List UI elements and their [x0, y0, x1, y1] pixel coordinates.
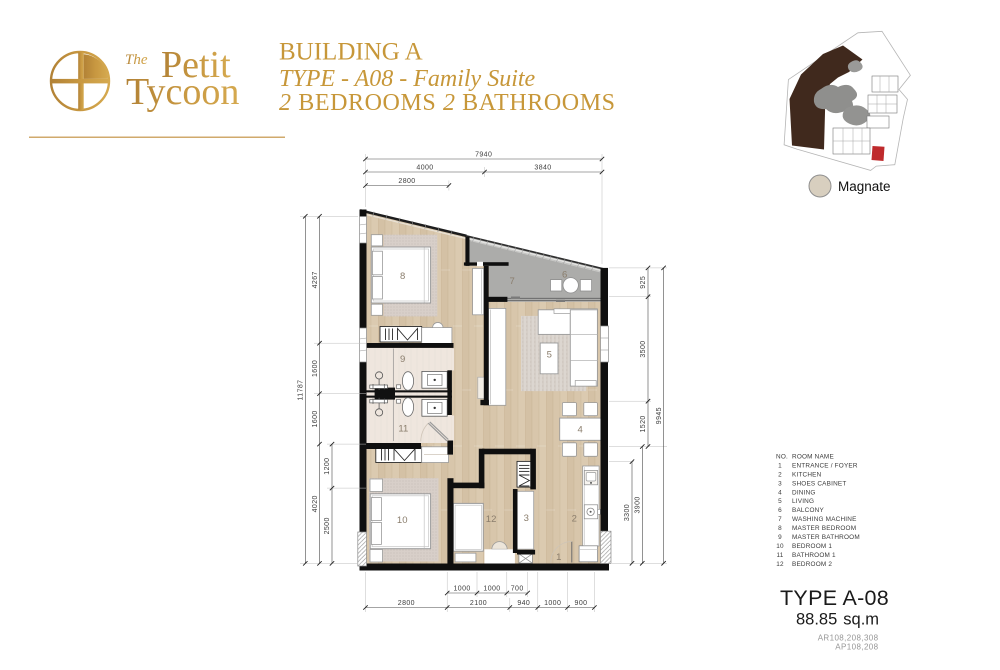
- svg-text:6: 6: [562, 270, 567, 281]
- svg-text:TYPE - A08 - Family Suite: TYPE - A08 - Family Suite: [279, 66, 536, 92]
- svg-text:700: 700: [511, 586, 524, 593]
- svg-text:3: 3: [778, 480, 782, 487]
- svg-text:The: The: [125, 52, 148, 68]
- svg-text:9: 9: [778, 534, 782, 541]
- svg-text:DINING: DINING: [792, 489, 816, 496]
- svg-text:7940: 7940: [475, 152, 492, 159]
- svg-text:Magnate: Magnate: [838, 179, 891, 194]
- svg-text:4000: 4000: [416, 165, 433, 172]
- svg-text:2: 2: [778, 471, 782, 478]
- svg-text:1520: 1520: [640, 415, 647, 432]
- svg-text:4: 4: [577, 425, 582, 436]
- svg-text:ENTRANCE / FOYER: ENTRANCE / FOYER: [792, 463, 858, 470]
- svg-text:6: 6: [778, 507, 782, 514]
- svg-text:AR108,208,308: AR108,208,308: [818, 634, 879, 643]
- svg-text:NO.: NO.: [776, 454, 788, 461]
- svg-text:9: 9: [400, 354, 405, 365]
- svg-text:925: 925: [640, 276, 647, 289]
- svg-text:Tycoon: Tycoon: [126, 71, 239, 113]
- svg-text:TYPE A-08: TYPE A-08: [780, 586, 889, 610]
- svg-text:MASTER BATHROOM: MASTER BATHROOM: [792, 534, 860, 541]
- svg-text:ROOM NAME: ROOM NAME: [792, 454, 834, 461]
- svg-text:88.85sq.m: 88.85sq.m: [796, 611, 879, 629]
- svg-text:5: 5: [547, 350, 552, 361]
- svg-text:BALCONY: BALCONY: [792, 507, 824, 514]
- svg-text:MASTER BEDROOM: MASTER BEDROOM: [792, 525, 856, 532]
- svg-text:7: 7: [778, 516, 782, 523]
- svg-text:4020: 4020: [312, 495, 319, 512]
- svg-text:3: 3: [524, 513, 529, 524]
- svg-text:KITCHEN: KITCHEN: [792, 471, 822, 478]
- svg-text:10: 10: [397, 515, 408, 526]
- svg-text:2: 2: [572, 514, 577, 525]
- svg-text:940: 940: [517, 600, 530, 607]
- svg-text:2800: 2800: [398, 178, 415, 185]
- svg-text:1000: 1000: [483, 586, 500, 593]
- svg-text:1000: 1000: [544, 600, 561, 607]
- svg-text:3300: 3300: [624, 504, 631, 521]
- svg-text:AP108,208: AP108,208: [835, 643, 878, 652]
- svg-text:11: 11: [398, 424, 408, 435]
- svg-text:WASHING MACHINE: WASHING MACHINE: [792, 516, 857, 523]
- svg-text:SHOES CABINET: SHOES CABINET: [792, 480, 846, 487]
- svg-text:3500: 3500: [640, 340, 647, 357]
- svg-text:BATHROOM 1: BATHROOM 1: [792, 552, 836, 559]
- svg-text:2100: 2100: [470, 600, 487, 607]
- svg-text:3900: 3900: [635, 496, 642, 513]
- svg-text:7: 7: [510, 276, 515, 287]
- svg-text:BUILDING A: BUILDING A: [279, 39, 423, 66]
- svg-text:10: 10: [776, 543, 784, 550]
- svg-text:9945: 9945: [656, 407, 663, 424]
- svg-text:BEDROOM 2: BEDROOM 2: [792, 561, 832, 568]
- svg-text:1600: 1600: [312, 410, 319, 427]
- svg-text:8: 8: [778, 525, 782, 532]
- svg-text:BEDROOM 1: BEDROOM 1: [792, 543, 832, 550]
- svg-text:1: 1: [778, 463, 782, 470]
- svg-text:11787: 11787: [298, 380, 305, 401]
- svg-text:1600: 1600: [312, 360, 319, 377]
- svg-text:LIVING: LIVING: [792, 498, 814, 505]
- svg-text:4267: 4267: [312, 271, 319, 288]
- svg-text:1000: 1000: [454, 586, 471, 593]
- svg-text:4: 4: [778, 489, 782, 496]
- svg-text:2800: 2800: [398, 600, 415, 607]
- svg-text:2 BEDROOMS 2 BATHROOMS: 2 BEDROOMS 2 BATHROOMS: [279, 90, 616, 116]
- svg-text:3840: 3840: [534, 165, 551, 172]
- svg-text:12: 12: [776, 561, 784, 568]
- svg-text:2500: 2500: [324, 517, 331, 534]
- svg-text:1: 1: [556, 552, 561, 563]
- svg-text:5: 5: [778, 498, 782, 505]
- svg-text:900: 900: [575, 600, 588, 607]
- svg-text:8: 8: [400, 271, 405, 282]
- svg-text:11: 11: [776, 552, 783, 559]
- svg-text:12: 12: [486, 514, 497, 525]
- svg-text:1200: 1200: [324, 458, 331, 475]
